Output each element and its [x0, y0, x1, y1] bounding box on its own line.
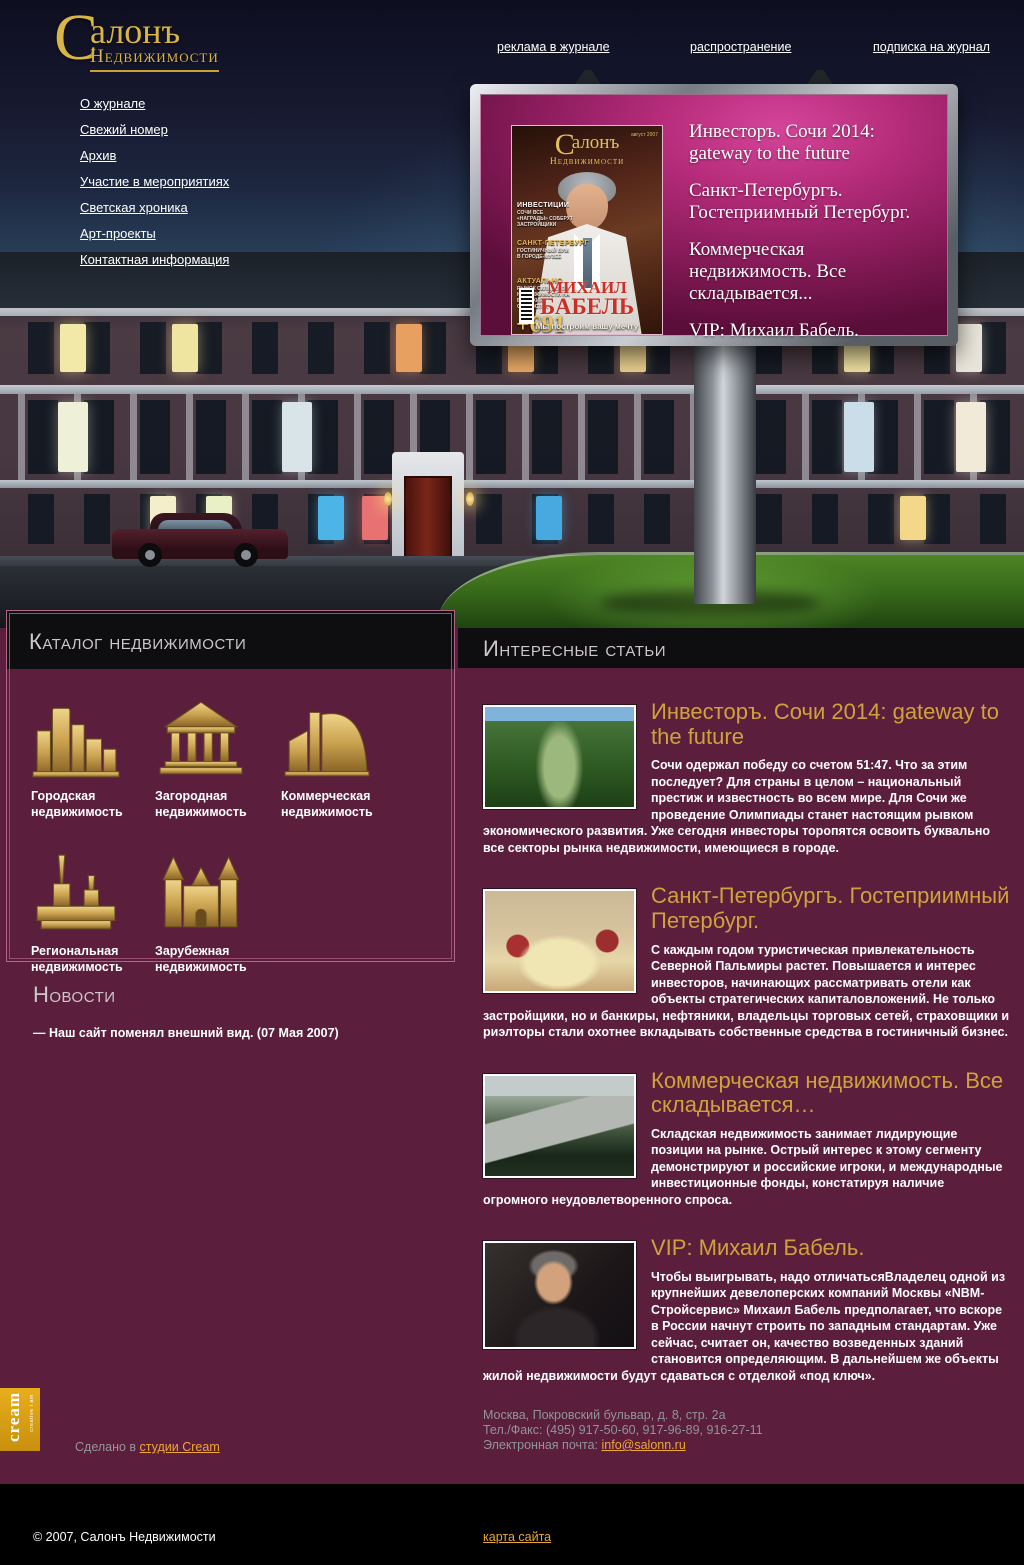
catalog-item-label: Загородная недвижимость: [155, 789, 267, 820]
email-line: Электронная почта: info@salonn.ru: [483, 1438, 763, 1453]
article-thumbnail[interactable]: [483, 889, 636, 993]
hero-scene: Салонъ Недвижимости август 2007 ИНВЕСТИЦ…: [0, 0, 1024, 628]
building-entrance: [392, 452, 464, 570]
lit-window: [60, 324, 86, 372]
catalog-item-label: Зарубежная недвижимость: [155, 944, 267, 975]
article: Санкт-Петербургъ. Гостеприимный Петербур…: [483, 884, 1011, 1040]
catalog-item-foreign[interactable]: Зарубежная недвижимость: [155, 846, 281, 975]
parked-car: [112, 505, 288, 567]
lit-window: [58, 402, 88, 472]
entrance-lamp: [384, 492, 392, 506]
billboard-headlines: Инвесторъ. Сочи 2014: gateway to the fut…: [689, 121, 927, 356]
site-logo[interactable]: С алонъ Недвижимости: [54, 8, 219, 72]
lit-window: [282, 402, 312, 472]
nav-item-fresh-issue[interactable]: Свежий номер: [80, 122, 229, 137]
catalog-item-label: Городская недвижимость: [31, 789, 143, 820]
cover-slogan: Мы построим вашу мечту: [512, 322, 662, 331]
nav-item-contacts[interactable]: Контактная информация: [80, 252, 229, 267]
billboard-headline: Коммерческая недвижимость. Все складывае…: [689, 239, 927, 306]
article-thumbnail[interactable]: [483, 705, 636, 809]
catalog-item-regional[interactable]: Региональная недвижимость: [31, 846, 155, 975]
lit-window: [900, 496, 926, 540]
news-item: — Наш сайт поменял внешний вид. (07 Мая …: [33, 1026, 453, 1040]
castle-icon: [155, 846, 281, 934]
nav-item-about[interactable]: О журнале: [80, 96, 229, 111]
articles-list: Инвесторъ. Сочи 2014: gateway to the fut…: [483, 700, 1011, 1412]
lit-window: [396, 324, 422, 372]
lit-window: [844, 402, 874, 472]
page: Салонъ Недвижимости август 2007 ИНВЕСТИЦ…: [0, 0, 1024, 1565]
main-nav: О журнале Свежий номер Архив Участие в м…: [80, 96, 229, 278]
cover-person-name: МИХАИЛ БАБЕЛЬ: [512, 280, 662, 318]
catalog-header: Каталог недвижимости: [7, 611, 454, 669]
entrance-lamp: [466, 492, 474, 506]
studio-credit-link[interactable]: студии Cream: [140, 1440, 220, 1454]
catalog-grid: Городская недвижимость Загородная недвиж…: [7, 669, 454, 976]
nav-item-art-projects[interactable]: Арт-проекты: [80, 226, 229, 241]
city-buildings-icon: [31, 691, 155, 779]
lit-window: [172, 324, 198, 372]
billboard-headline: Инвесторъ. Сочи 2014: gateway to the fut…: [689, 121, 927, 166]
lit-window: [956, 402, 986, 472]
article: Инвесторъ. Сочи 2014: gateway to the fut…: [483, 700, 1011, 856]
article: VIP: Михаил Бабель. Чтобы выигрывать, на…: [483, 1236, 1011, 1384]
country-house-icon: [155, 691, 281, 779]
address-line: Москва, Покровский бульвар, д. 8, стр. 2…: [483, 1408, 763, 1423]
magazine-cover: Салонъ Недвижимости август 2007 ИНВЕСТИЦ…: [511, 125, 663, 335]
copyright: © 2007, Салонъ Недвижимости: [33, 1530, 216, 1544]
billboard-headline: VIP: Михаил Бабель.: [689, 320, 927, 342]
billboard-face: Салонъ Недвижимости август 2007 ИНВЕСТИЦ…: [480, 94, 948, 336]
catalog-item-label: Коммерческая недвижимость: [281, 789, 393, 820]
studio-credit: Сделано в студии Cream: [75, 1440, 220, 1454]
catalog-panel: Каталог недвижимости Городская недвижимо…: [6, 610, 455, 962]
billboard: Салонъ Недвижимости август 2007 ИНВЕСТИЦ…: [470, 84, 958, 346]
articles-title: Интересные статьи: [483, 636, 666, 661]
article: Коммерческая недвижимость. Все складывае…: [483, 1069, 1011, 1209]
catalog-item-commercial[interactable]: Коммерческая недвижимость: [281, 691, 441, 820]
nav-item-chronicle[interactable]: Светская хроника: [80, 200, 229, 215]
catalog-title: Каталог недвижимости: [29, 629, 246, 654]
billboard-headline: Санкт-Петербургъ. Гостеприимный Петербур…: [689, 180, 927, 225]
catalog-item-country[interactable]: Загородная недвижимость: [155, 691, 281, 820]
top-link-subscription[interactable]: подписка на журнал: [873, 40, 990, 54]
billboard-pole: [694, 342, 756, 604]
commercial-building-icon: [281, 691, 441, 779]
cover-rubric: ИНВЕСТИЦИИСОЧИ ВСЕ «НАГРАДЫ» СОБЕРУТ ЗАС…: [517, 202, 573, 228]
lit-window: [318, 496, 344, 540]
footer-bar: © 2007, Салонъ Недвижимости карта сайта: [0, 1484, 1024, 1565]
fortress-spire-icon: [31, 846, 155, 934]
top-link-distribution[interactable]: распространение: [690, 40, 791, 54]
articles-header: Интересные статьи: [458, 628, 1024, 668]
nav-item-events[interactable]: Участие в мероприятиях: [80, 174, 229, 189]
news-section: Новости — Наш сайт поменял внешний вид. …: [33, 982, 453, 1040]
article-thumbnail[interactable]: [483, 1074, 636, 1178]
cover-date: август 2007: [631, 132, 658, 138]
top-link-advertising[interactable]: реклама в журнале: [497, 40, 610, 54]
email-link[interactable]: info@salonn.ru: [602, 1438, 686, 1452]
contact-info: Москва, Покровский бульвар, д. 8, стр. 2…: [483, 1408, 763, 1453]
phone-line: Тел./Факс: (495) 917-50-60, 917-96-89, 9…: [483, 1423, 763, 1438]
lit-window: [536, 496, 562, 540]
article-thumbnail[interactable]: [483, 1241, 636, 1349]
news-title: Новости: [33, 982, 116, 1007]
catalog-item-city[interactable]: Городская недвижимость: [31, 691, 155, 820]
cream-studio-badge[interactable]: cream creative i am: [0, 1388, 40, 1451]
lit-window: [956, 324, 982, 372]
sitemap-link[interactable]: карта сайта: [483, 1530, 551, 1544]
cover-rubric: САНКТ-ПЕТЕРБУРГГОСТИНИЧНЫЙ БУМ В ГОРОДЕ-…: [517, 240, 589, 260]
catalog-item-label: Региональная недвижимость: [31, 944, 143, 975]
nav-item-archive[interactable]: Архив: [80, 148, 229, 163]
